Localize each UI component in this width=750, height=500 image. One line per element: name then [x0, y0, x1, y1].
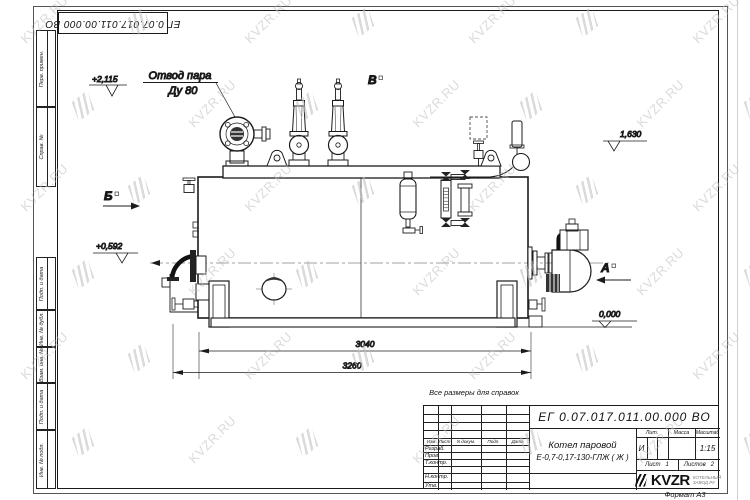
- drain-valve-right: [529, 298, 545, 311]
- sheets-cell: Листов 2: [678, 459, 720, 470]
- product-name: Котел паровой Е-0,7-0,17-130-ГЛЖ ( Ж ): [529, 428, 636, 473]
- row-utv: Утв.: [425, 482, 451, 490]
- col-header-izm: Изм: [424, 438, 438, 445]
- elevation-value: 1,630: [620, 129, 642, 139]
- row-nkontr: Н.контр.: [425, 473, 451, 481]
- dimension-3260: 3260: [173, 324, 531, 379]
- steam-outlet-callout: Отвод пара Ду 80: [143, 70, 218, 97]
- boiler-shell: [198, 177, 528, 318]
- row-tkontr: Т.контр.: [425, 459, 451, 466]
- view-marker-b: Б: [103, 189, 140, 210]
- elevation-0592: +0,592: [93, 241, 138, 263]
- kvzr-logo-icon: [635, 474, 648, 487]
- rear-bracket: [529, 316, 542, 327]
- centerline-arrow: [151, 260, 160, 266]
- drawing-sheet: { "watermark": { "text": "KVZR.RU" }, "f…: [0, 0, 750, 500]
- elevation-value: +0,592: [96, 241, 123, 251]
- elevation-0000: 0,000: [592, 309, 637, 328]
- left-wall-valve-bottom: [172, 298, 198, 310]
- scale-header: Масштаб: [695, 428, 720, 437]
- lit-value: И: [636, 437, 647, 459]
- scale-value: 1:15: [695, 437, 720, 459]
- sheets-label: Листов: [684, 462, 706, 468]
- lifting-lug-right: [481, 150, 501, 166]
- feed-pump: [528, 219, 591, 292]
- product-name-line1: Котел паровой: [548, 440, 616, 451]
- view-marker-a: А: [596, 261, 631, 284]
- callout-line1: Отвод пара: [149, 70, 212, 82]
- col-header-ndokum: N докум.: [451, 438, 481, 445]
- view-marker-v: В: [368, 73, 383, 87]
- row-prov: Пров.: [425, 452, 451, 459]
- dimension-3040: 3040: [199, 332, 531, 379]
- top-deck: [223, 166, 500, 178]
- sheets-value: 2: [711, 462, 714, 468]
- view-marker-a-label: А: [600, 261, 610, 275]
- reference-note: Все размеры для справок: [428, 388, 520, 398]
- callout-leader: [216, 83, 235, 117]
- safety-valve-1: [289, 79, 309, 166]
- kvzr-logo-word: KVZR: [651, 472, 690, 489]
- sheet-cell: Лист 1: [636, 459, 678, 470]
- elevation-2115: +2,115: [89, 74, 127, 96]
- mass-header: Масса: [668, 428, 695, 437]
- logo-subtext-2: ЗАВОД.РУ: [693, 480, 721, 485]
- left-wall-valve-top: [183, 178, 195, 193]
- col-header-list: Лист: [438, 438, 451, 445]
- wall-nozzle-box: [196, 284, 210, 300]
- title-block: ЕГ 0.07.017.011.00.000 ВО Котел паровой …: [423, 405, 719, 489]
- elevation-1630: 1,630: [603, 129, 647, 151]
- dim-value: 3260: [343, 361, 362, 371]
- row-razrab: Разраб.: [425, 445, 451, 452]
- safety-valve-2: [328, 79, 348, 166]
- view-marker-b-label: Б: [104, 189, 113, 203]
- col-header-podp: Подп.: [481, 438, 506, 445]
- sheet-value: 1: [666, 462, 669, 468]
- product-name-line2: Е-0,7-0,17-130-ГЛЖ ( Ж ): [536, 453, 628, 462]
- view-marker-v-label: В: [368, 73, 377, 87]
- sheet-label: Лист: [645, 462, 660, 468]
- logo-cell: KVZR КОТЕЛЬНЫЙ ЗАВОД.РУ: [636, 470, 720, 490]
- elevation-value: 0,000: [599, 309, 621, 319]
- col-header-data: Дата: [506, 438, 529, 445]
- callout-line2: Ду 80: [167, 85, 199, 97]
- elevation-value: +2,115: [92, 74, 118, 84]
- format-note: Формат А3: [655, 490, 715, 499]
- dim-value: 3040: [356, 339, 375, 349]
- steam-outlet-flange: [216, 83, 270, 166]
- doc-number: ЕГ 0.07.017.011.00.000 ВО: [529, 406, 720, 428]
- lifting-lug-left: [267, 150, 287, 166]
- lit-header: Лит.: [636, 428, 668, 437]
